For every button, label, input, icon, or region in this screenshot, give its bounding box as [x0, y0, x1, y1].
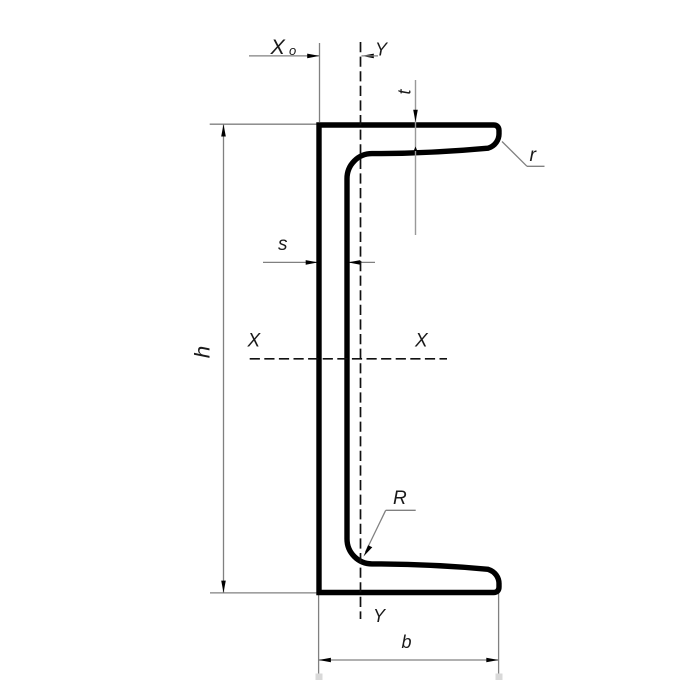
- svg-text:b: b: [402, 632, 412, 652]
- svg-text:s: s: [278, 234, 288, 255]
- svg-text:Y: Y: [375, 40, 389, 60]
- svg-text:X: X: [414, 331, 429, 352]
- svg-text:X: X: [247, 331, 262, 352]
- svg-text:o: o: [289, 43, 296, 58]
- svg-text:Y: Y: [373, 606, 387, 626]
- svg-text:R: R: [393, 488, 407, 509]
- svg-text:h: h: [192, 346, 215, 359]
- svg-text:X: X: [270, 35, 287, 59]
